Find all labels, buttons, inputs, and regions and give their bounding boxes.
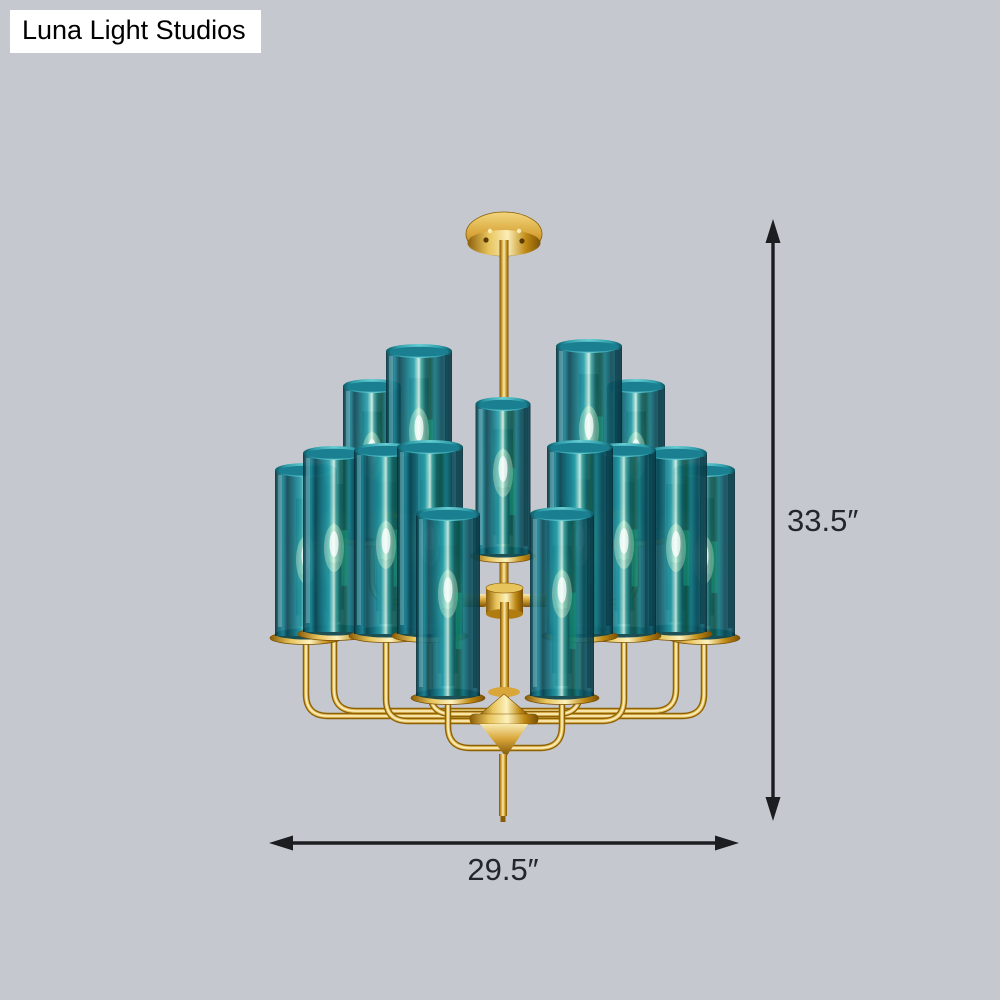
product-image: Luna Light Studios 33.5″ 29.5″ xyxy=(0,0,1000,1000)
watermark: Luna Light Studios xyxy=(10,10,261,53)
glass-shade xyxy=(471,397,536,563)
height-dimension-label: 33.5″ xyxy=(787,503,858,539)
watermark-text: Luna Light Studios xyxy=(22,15,246,45)
height-dimension-arrow xyxy=(766,219,781,821)
glass-shade xyxy=(525,507,599,705)
glass-shade xyxy=(411,507,485,705)
width-dimension-arrow xyxy=(269,836,739,851)
width-dimension-label: 29.5″ xyxy=(403,852,603,888)
chandelier xyxy=(270,212,740,822)
finial-rod xyxy=(499,754,507,822)
chandelier-illustration xyxy=(0,0,1000,1000)
